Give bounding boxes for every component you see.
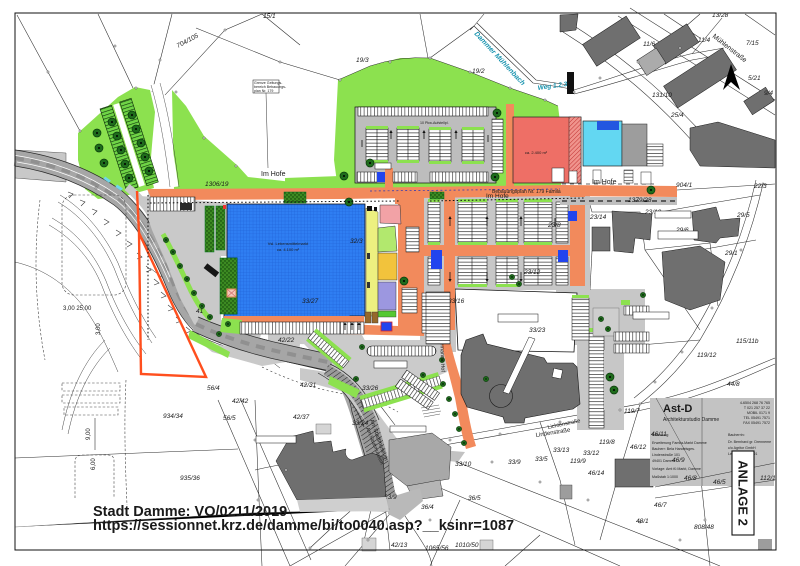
svg-text:42/31: 42/31	[300, 382, 317, 389]
svg-text:33/13: 33/13	[553, 447, 570, 454]
svg-text:48/1: 48/1	[636, 518, 649, 525]
svg-text:4-6504 268 76 765: 4-6504 268 76 765	[740, 401, 770, 405]
svg-text:19/2: 19/2	[472, 68, 485, 75]
svg-text:46/14: 46/14	[588, 470, 605, 477]
svg-text:23/12: 23/12	[523, 269, 541, 276]
svg-text:plan Nr. 179: plan Nr. 179	[254, 89, 273, 93]
svg-text:TEL 05491 7571: TEL 05491 7571	[744, 416, 770, 420]
svg-text:33/10: 33/10	[455, 461, 472, 468]
svg-text:T 021 257 37 22: T 021 257 37 22	[744, 406, 770, 410]
svg-text:119/9: 119/9	[570, 458, 586, 465]
svg-text:33/5: 33/5	[535, 456, 548, 463]
svg-text:FAX 05491 7572: FAX 05491 7572	[743, 421, 770, 425]
svg-text:ANLAGE 2: ANLAGE 2	[736, 460, 751, 526]
svg-text:119/12: 119/12	[697, 352, 717, 359]
svg-text:https://sessionnet.krz.de/damm: https://sessionnet.krz.de/damme/bi/to004…	[93, 518, 514, 534]
svg-text:Bauherrin:: Bauherrin:	[728, 433, 745, 437]
svg-text:46/9: 46/9	[672, 457, 685, 464]
svg-text:904/1: 904/1	[676, 182, 693, 189]
svg-text:Architekturstudio Damme: Architekturstudio Damme	[663, 417, 719, 423]
svg-text:c/o Agritor GmbH: c/o Agritor GmbH	[728, 446, 756, 450]
svg-text:119/7: 119/7	[624, 408, 640, 415]
svg-text:11/6: 11/6	[643, 41, 656, 48]
svg-text:32/3: 32/3	[350, 238, 363, 245]
svg-text:MOBIL 0171 9: MOBIL 0171 9	[747, 411, 770, 415]
svg-text:1306/19: 1306/19	[205, 181, 229, 188]
svg-text:9,00: 9,00	[86, 428, 92, 440]
svg-text:Dr. Bernhard gr. Drenneme: Dr. Bernhard gr. Drenneme	[728, 440, 771, 444]
svg-text:3,00 25,00: 3,00 25,00	[63, 306, 92, 312]
svg-text:6,00: 6,00	[91, 458, 97, 470]
svg-text:5/21: 5/21	[748, 75, 761, 82]
svg-text:22/3: 22/3	[753, 183, 767, 190]
svg-text:Bauherr: Bela Handelsges.: Bauherr: Bela Handelsges.	[652, 447, 695, 451]
svg-text:3,00: 3,00	[96, 323, 102, 335]
svg-text:Vorlage: Amt fü Markt, Damme: Vorlage: Amt fü Markt, Damme	[652, 467, 701, 471]
svg-text:Maßstab 1:1000: Maßstab 1:1000	[652, 475, 678, 479]
svg-text:Ast-D: Ast-D	[663, 403, 692, 415]
svg-text:46/12: 46/12	[630, 444, 647, 451]
svg-text:33/16: 33/16	[448, 298, 465, 305]
svg-text:115/11b: 115/11b	[736, 338, 759, 345]
svg-text:36/5: 36/5	[468, 495, 481, 502]
svg-text:56/4: 56/4	[207, 385, 220, 392]
svg-text:808/48: 808/48	[694, 524, 714, 531]
svg-text:Erweiterung Famila-Markt Damme: Erweiterung Famila-Markt Damme	[652, 441, 707, 445]
svg-text:Im Hofe: Im Hofe	[261, 171, 286, 178]
svg-text:ca. 4.100 m²: ca. 4.100 m²	[277, 247, 300, 252]
svg-text:131/10: 131/10	[652, 92, 672, 99]
svg-text:46/7: 46/7	[654, 502, 667, 509]
svg-text:935/36: 935/36	[180, 475, 200, 482]
svg-text:33/9: 33/9	[508, 459, 521, 466]
svg-text:41: 41	[196, 308, 204, 315]
svg-text:25/4: 25/4	[670, 112, 684, 119]
svg-text:7/15: 7/15	[746, 40, 759, 47]
svg-text:23/14: 23/14	[589, 214, 607, 221]
svg-text:33/24: 33/24	[352, 420, 369, 427]
svg-text:33/26: 33/26	[362, 385, 379, 392]
svg-text:46/8: 46/8	[684, 475, 697, 482]
svg-text:1065/56: 1065/56	[425, 545, 449, 552]
svg-text:15/1: 15/1	[263, 13, 276, 20]
svg-text:29/5: 29/5	[736, 212, 750, 219]
svg-text:46/5: 46/5	[713, 479, 726, 486]
svg-text:42/42: 42/42	[232, 398, 249, 405]
svg-text:42/37: 42/37	[293, 414, 310, 421]
svg-text:19/3: 19/3	[356, 57, 369, 64]
svg-text:33/27: 33/27	[302, 298, 319, 305]
svg-text:112/1: 112/1	[760, 475, 776, 482]
svg-text:56/5: 56/5	[223, 415, 236, 422]
svg-text:11/4: 11/4	[698, 37, 711, 44]
svg-text:Im Hofe: Im Hofe	[592, 179, 617, 186]
svg-text:1010/50: 1010/50	[455, 542, 479, 549]
svg-text:1379/28: 1379/28	[628, 197, 652, 204]
svg-text:23/8: 23/8	[547, 222, 561, 229]
svg-text:33/12: 33/12	[583, 450, 600, 457]
svg-text:934/34: 934/34	[163, 413, 183, 420]
svg-text:29/1: 29/1	[724, 250, 738, 257]
svg-text:42/13: 42/13	[391, 542, 408, 549]
svg-text:46/11: 46/11	[651, 431, 667, 438]
svg-text:119/8: 119/8	[599, 439, 615, 446]
svg-text:42/22: 42/22	[278, 337, 295, 344]
svg-text:9/4: 9/4	[764, 90, 773, 97]
svg-text:10 Pkw-Aufstellpl.: 10 Pkw-Aufstellpl.	[420, 121, 449, 125]
svg-text:33/23: 33/23	[529, 327, 546, 334]
svg-text:Vsl. Lebensmittelmarkt: Vsl. Lebensmittelmarkt	[268, 241, 309, 246]
svg-text:ca. 2.400 m²: ca. 2.400 m²	[525, 150, 548, 155]
svg-text:36/4: 36/4	[421, 504, 434, 511]
svg-text:44/8: 44/8	[727, 381, 740, 388]
